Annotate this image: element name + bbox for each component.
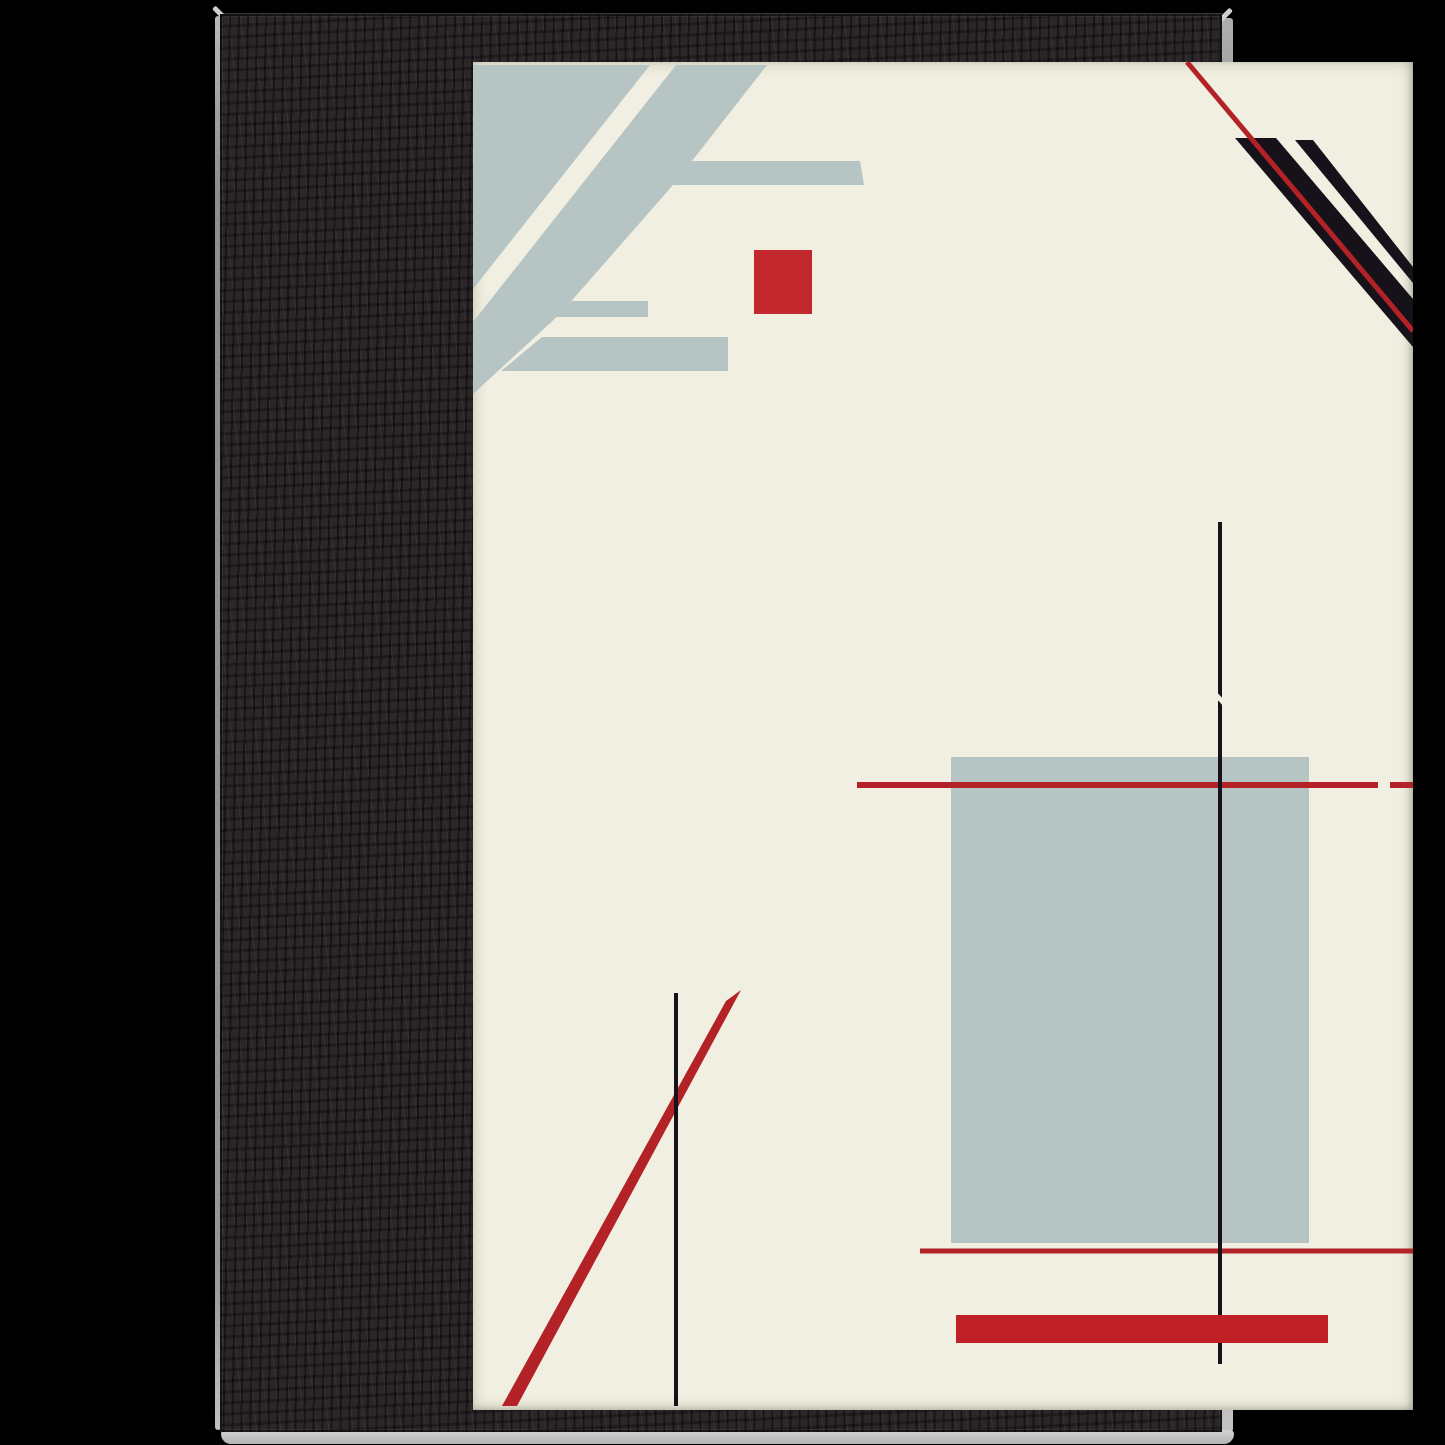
- topright-red-stripe-shape: [1187, 62, 1413, 331]
- red-bar-shape: [956, 1315, 1328, 1343]
- abstract-artwork: [473, 62, 1413, 1410]
- center-gray-rectangle-shape: [951, 757, 1309, 1243]
- left-red-diagonal-shape: [502, 990, 741, 1406]
- picture-frame: [220, 14, 1222, 1432]
- topleft-bar-middle-shape: [556, 301, 648, 317]
- frame-outer-highlight-bottom: [221, 1430, 1234, 1444]
- art-poster: [473, 62, 1413, 1410]
- topleft-bar-lower-shape: [501, 337, 728, 371]
- product-photo-scene: [0, 0, 1445, 1445]
- red-square-shape: [754, 250, 812, 314]
